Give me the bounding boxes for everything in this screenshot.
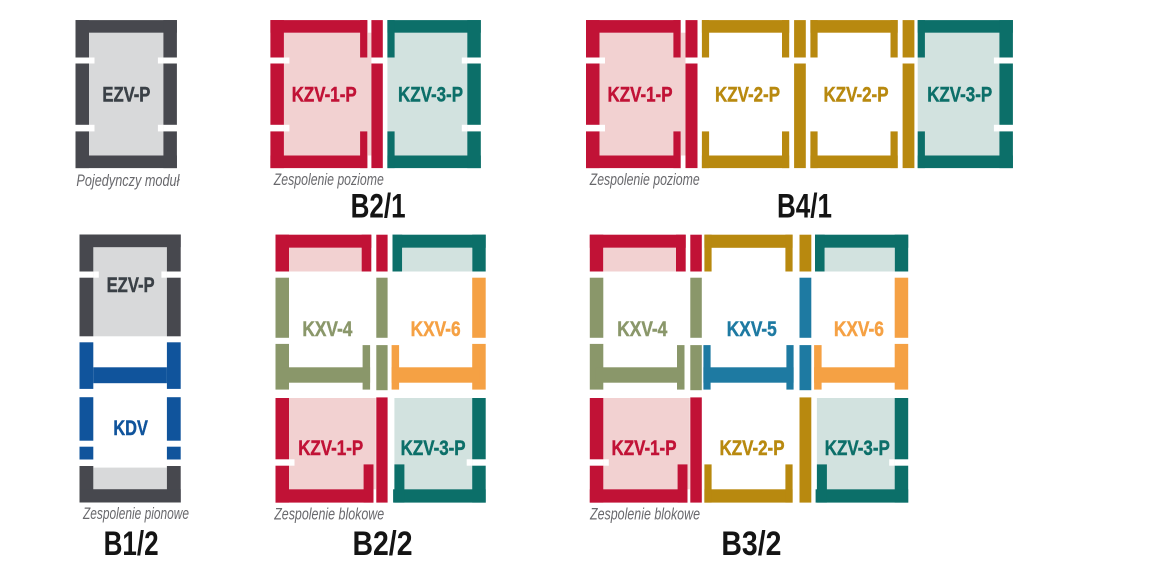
svg-text:KZV-3-P: KZV-3-P — [398, 84, 463, 107]
svg-text:KZV-3-P: KZV-3-P — [825, 437, 890, 460]
svg-text:KZV-2-P: KZV-2-P — [824, 84, 889, 107]
svg-text:KZV-1-P: KZV-1-P — [298, 437, 363, 460]
svg-text:KXV-5: KXV-5 — [727, 318, 777, 341]
svg-text:EZV-P: EZV-P — [107, 274, 155, 297]
svg-text:Zespolenie blokowe: Zespolenie blokowe — [273, 506, 384, 524]
svg-text:B4/1: B4/1 — [777, 187, 832, 225]
svg-text:B3/2: B3/2 — [721, 525, 781, 563]
svg-text:KZV-1-P: KZV-1-P — [612, 437, 677, 460]
svg-text:Zespolenie poziome: Zespolenie poziome — [589, 171, 700, 189]
svg-text:KZV-3-P: KZV-3-P — [927, 84, 992, 107]
svg-text:B2/2: B2/2 — [353, 525, 413, 563]
svg-text:Pojedynczy moduł: Pojedynczy moduł — [76, 172, 180, 190]
svg-text:KZV-2-P: KZV-2-P — [720, 437, 785, 460]
svg-text:KXV-4: KXV-4 — [617, 318, 667, 341]
svg-text:B2/1: B2/1 — [351, 187, 406, 225]
svg-text:Zespolenie pionowe: Zespolenie pionowe — [82, 505, 189, 523]
svg-text:KZV-1-P: KZV-1-P — [608, 84, 673, 107]
svg-text:KZV-3-P: KZV-3-P — [401, 437, 466, 460]
svg-text:KZV-2-P: KZV-2-P — [715, 84, 780, 107]
svg-text:EZV-P: EZV-P — [102, 84, 150, 107]
svg-text:KDV: KDV — [113, 417, 148, 440]
svg-text:Zespolenie blokowe: Zespolenie blokowe — [589, 506, 700, 524]
svg-text:B1/2: B1/2 — [104, 525, 159, 563]
svg-text:KZV-1-P: KZV-1-P — [292, 84, 357, 107]
svg-text:Zespolenie poziome: Zespolenie poziome — [273, 171, 384, 189]
svg-text:KXV-6: KXV-6 — [834, 318, 884, 341]
svg-text:KXV-6: KXV-6 — [411, 318, 461, 341]
svg-text:KXV-4: KXV-4 — [302, 318, 352, 341]
